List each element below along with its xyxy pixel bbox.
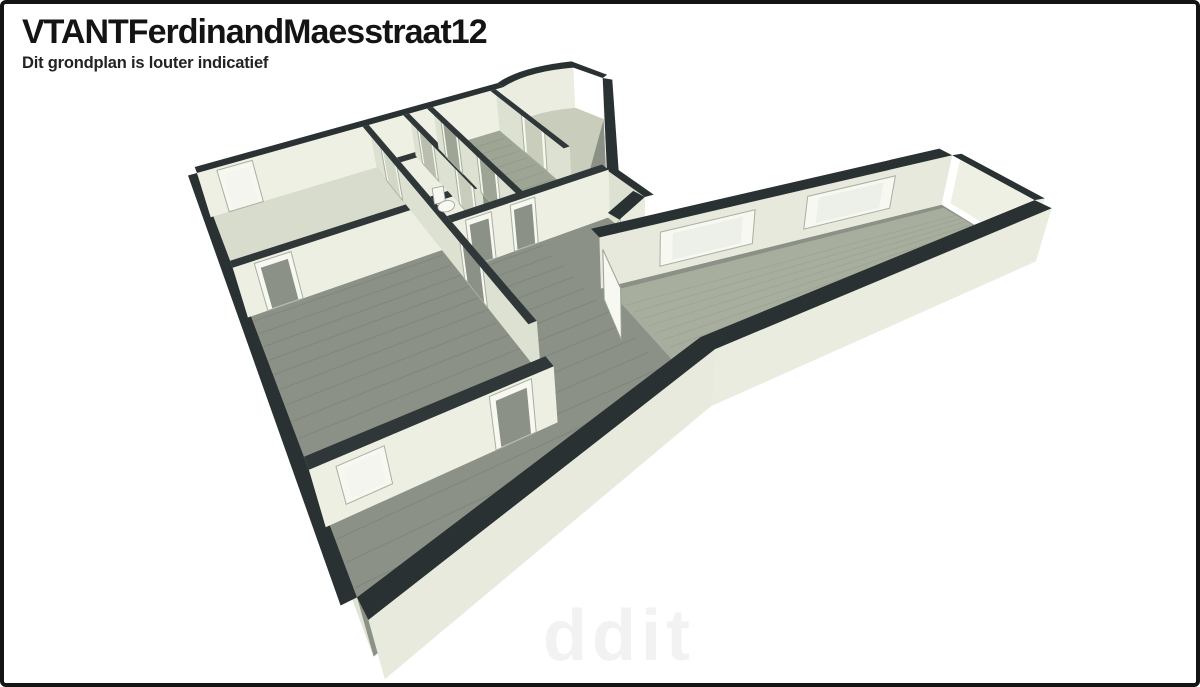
page-title: VTANTFerdinandMaesstraat12	[22, 14, 487, 51]
page: VTANTFerdinandMaesstraat12 Dit grondplan…	[0, 0, 1200, 687]
floorplan-3d	[0, 0, 1200, 687]
page-subtitle: Dit grondplan is louter indicatief	[22, 54, 487, 73]
header: VTANTFerdinandMaesstraat12 Dit grondplan…	[22, 14, 487, 73]
